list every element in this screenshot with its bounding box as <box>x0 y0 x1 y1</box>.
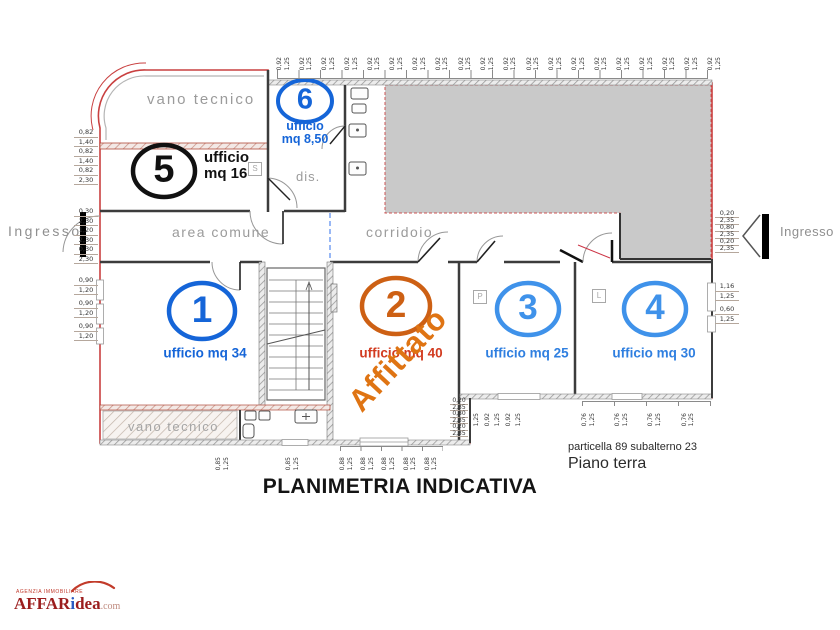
room-6-label-line2: mq 8,50 <box>267 133 343 146</box>
room-4-label: ufficio mq 30 <box>612 346 695 361</box>
floor-name: Piano terra <box>568 455 646 473</box>
symbol-p: P <box>473 290 487 304</box>
room-5-label-line1: ufficio <box>204 150 249 166</box>
logo-part-affar: AFFAR <box>14 594 70 613</box>
room-6-number: 6 <box>297 85 313 114</box>
room-2-number: 2 <box>386 286 407 323</box>
dimension-chain-left-lower: 0,901,200,901,200,901,20 <box>74 277 98 346</box>
agency-logo: AGENZIA IMMOBILIARE AFFARidea.com <box>14 589 134 612</box>
label-area-comune: area comune <box>172 224 270 240</box>
room-5-label-line2: mq 16 <box>204 166 249 182</box>
logo-part-dea: dea <box>75 594 101 613</box>
room-3-number: 3 <box>518 290 537 325</box>
label-dis: dis. <box>296 169 320 184</box>
cadastral-reference: particella 89 subalterno 23 <box>568 441 697 453</box>
room-1-number: 1 <box>192 291 213 328</box>
dimension-chain-right-upper: 0,202,350,802,350,202,35 <box>715 211 739 253</box>
logo-swoosh-icon <box>70 581 116 593</box>
logo-part-com: .com <box>101 601 121 612</box>
label-ingresso-right: Ingresso <box>780 224 834 239</box>
room-1-label: ufficio mq 34 <box>163 346 246 361</box>
room-3-label: ufficio mq 25 <box>485 346 568 361</box>
dimension-chain-middle-stack: 0,202,350,802,350,202,35 <box>450 398 468 437</box>
symbol-l: L <box>592 289 606 303</box>
label-vano-tecnico-bottom: vano tecnico <box>128 419 219 434</box>
dimension-chain-bottom-b: 0,851,25 <box>286 448 307 470</box>
label-corridoio: corridoio <box>366 224 433 240</box>
dimension-chain-top: 0,921,250,921,250,921,250,921,250,921,25… <box>277 44 731 70</box>
dimension-chain-bottom-c: 0,881,250,881,250,881,250,881,250,881,25 <box>340 448 446 470</box>
room-4-number: 4 <box>645 290 664 325</box>
entrance-right-marker <box>743 214 769 259</box>
label-vano-tecnico-top: vano tecnico <box>147 91 255 108</box>
plan-title: PLANIMETRIA INDICATIVA <box>263 475 537 499</box>
dimension-chain-right-lower: 1,161,250,601,25 <box>715 283 739 329</box>
dimension-ticks-bottom-c <box>340 446 443 451</box>
label-ingresso-left: Ingresso <box>8 223 82 239</box>
symbol-s: S <box>248 162 262 176</box>
room-5-label: ufficio mq 16 <box>204 150 249 182</box>
room-5-number: 5 <box>153 150 174 188</box>
staircase <box>267 268 325 400</box>
dimension-chain-bottom-d: 1,250,921,250,921,25 <box>474 404 527 426</box>
dimension-chain-left-upper: 0,821,400,821,400,822,30 <box>74 129 98 186</box>
floor-plan-page: vano tecnico vano tecnico area comune co… <box>0 0 840 630</box>
dimension-chain-bottom-a: 0,851,25 <box>216 448 237 470</box>
dimension-chain-left-middle: 0,302,301,202,300,302,30 <box>74 208 98 265</box>
adjacent-property-area <box>385 85 711 259</box>
logo-wordmark: AFFARidea.com <box>14 595 134 612</box>
dimension-ticks-bottom-e <box>582 401 711 406</box>
room-6-label: ufficio mq 8,50 <box>267 120 343 146</box>
dimension-chain-bottom-e: 0,761,250,761,250,761,250,761,25 <box>582 404 715 426</box>
dimension-ticks-top <box>277 70 708 79</box>
